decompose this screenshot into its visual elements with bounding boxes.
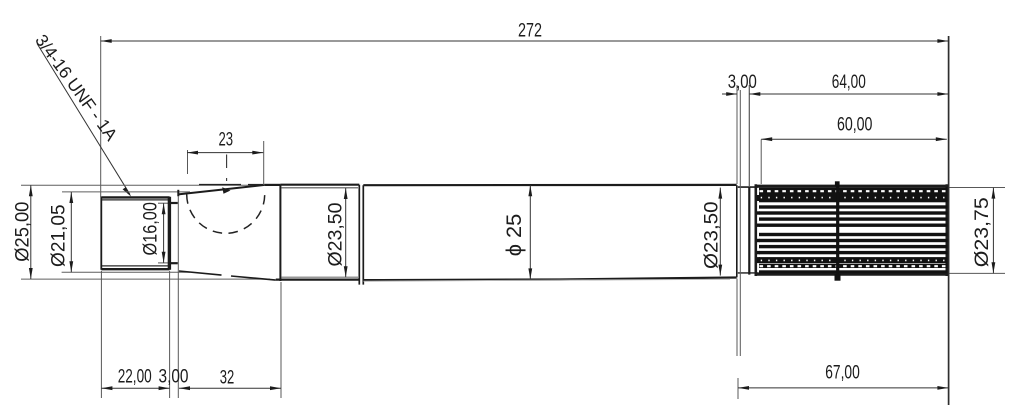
- svg-text:Ø23,50: Ø23,50: [701, 201, 722, 269]
- svg-text:Ø21,05: Ø21,05: [48, 204, 69, 267]
- svg-text:64,00: 64,00: [832, 72, 866, 93]
- svg-text:Ø23,75: Ø23,75: [972, 197, 993, 267]
- svg-text:Ø25,00: Ø25,00: [12, 202, 33, 262]
- svg-text:Ø16,00: Ø16,00: [141, 202, 162, 256]
- svg-text:3,00: 3,00: [728, 72, 757, 93]
- svg-text:ϕ 25: ϕ 25: [503, 214, 526, 257]
- svg-text:32: 32: [220, 368, 235, 389]
- svg-text:67,00: 67,00: [825, 363, 860, 384]
- svg-text:60,00: 60,00: [837, 115, 873, 136]
- svg-text:Ø23,50: Ø23,50: [325, 203, 346, 267]
- svg-text:22,00: 22,00: [118, 366, 152, 387]
- svg-text:272: 272: [518, 21, 542, 42]
- svg-text:23: 23: [219, 130, 234, 151]
- svg-text:3,00: 3,00: [159, 366, 189, 387]
